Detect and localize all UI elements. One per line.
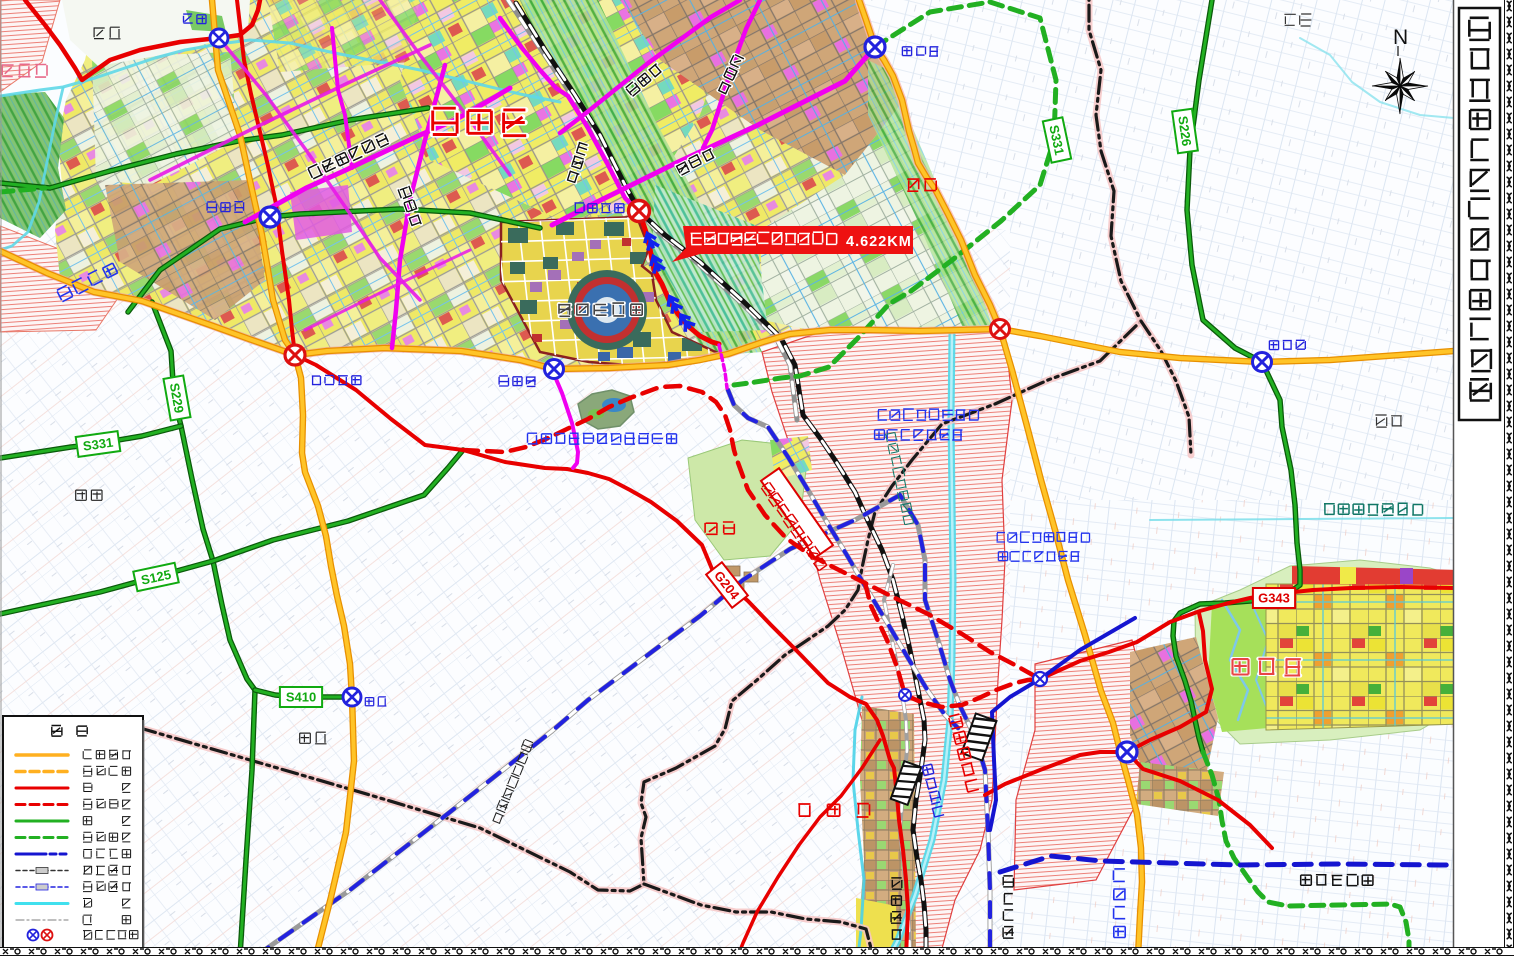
svg-text:S410: S410	[286, 690, 316, 705]
svg-text:G343: G343	[1258, 591, 1290, 606]
svg-text:N: N	[1393, 26, 1408, 49]
svg-text:4.622KM: 4.622KM	[846, 234, 912, 250]
